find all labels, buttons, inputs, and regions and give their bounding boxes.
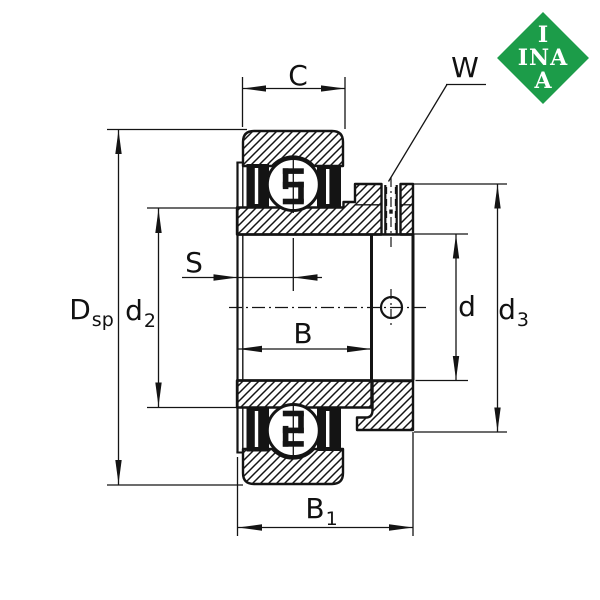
dim-label-s: S <box>185 249 203 277</box>
ina-logo-line3: A <box>534 70 551 93</box>
ina-logo: I INA A <box>488 3 598 113</box>
dim-label-d3: d3 <box>498 296 528 324</box>
dim-label-b: B <box>293 320 312 348</box>
seal-top-left <box>247 164 270 208</box>
ina-logo-text: I INA A <box>488 3 598 113</box>
grub-screw-slot <box>385 177 396 249</box>
dim-label-d2: d2 <box>125 297 155 325</box>
dim-label-c: C <box>288 62 308 90</box>
dim-label-b1: B1 <box>305 495 336 523</box>
ina-logo-line2: INA <box>518 47 568 70</box>
bearing-drawing-canvas: C W Dsp d2 S B B1 d d3 I INA A <box>0 0 600 600</box>
dim-label-d: d <box>458 293 476 321</box>
dim-label-w: W <box>451 54 479 82</box>
dim-label-dsp: Dsp <box>69 296 113 324</box>
seal-bottom-left <box>247 407 270 452</box>
ina-logo-line1: I <box>538 24 548 47</box>
